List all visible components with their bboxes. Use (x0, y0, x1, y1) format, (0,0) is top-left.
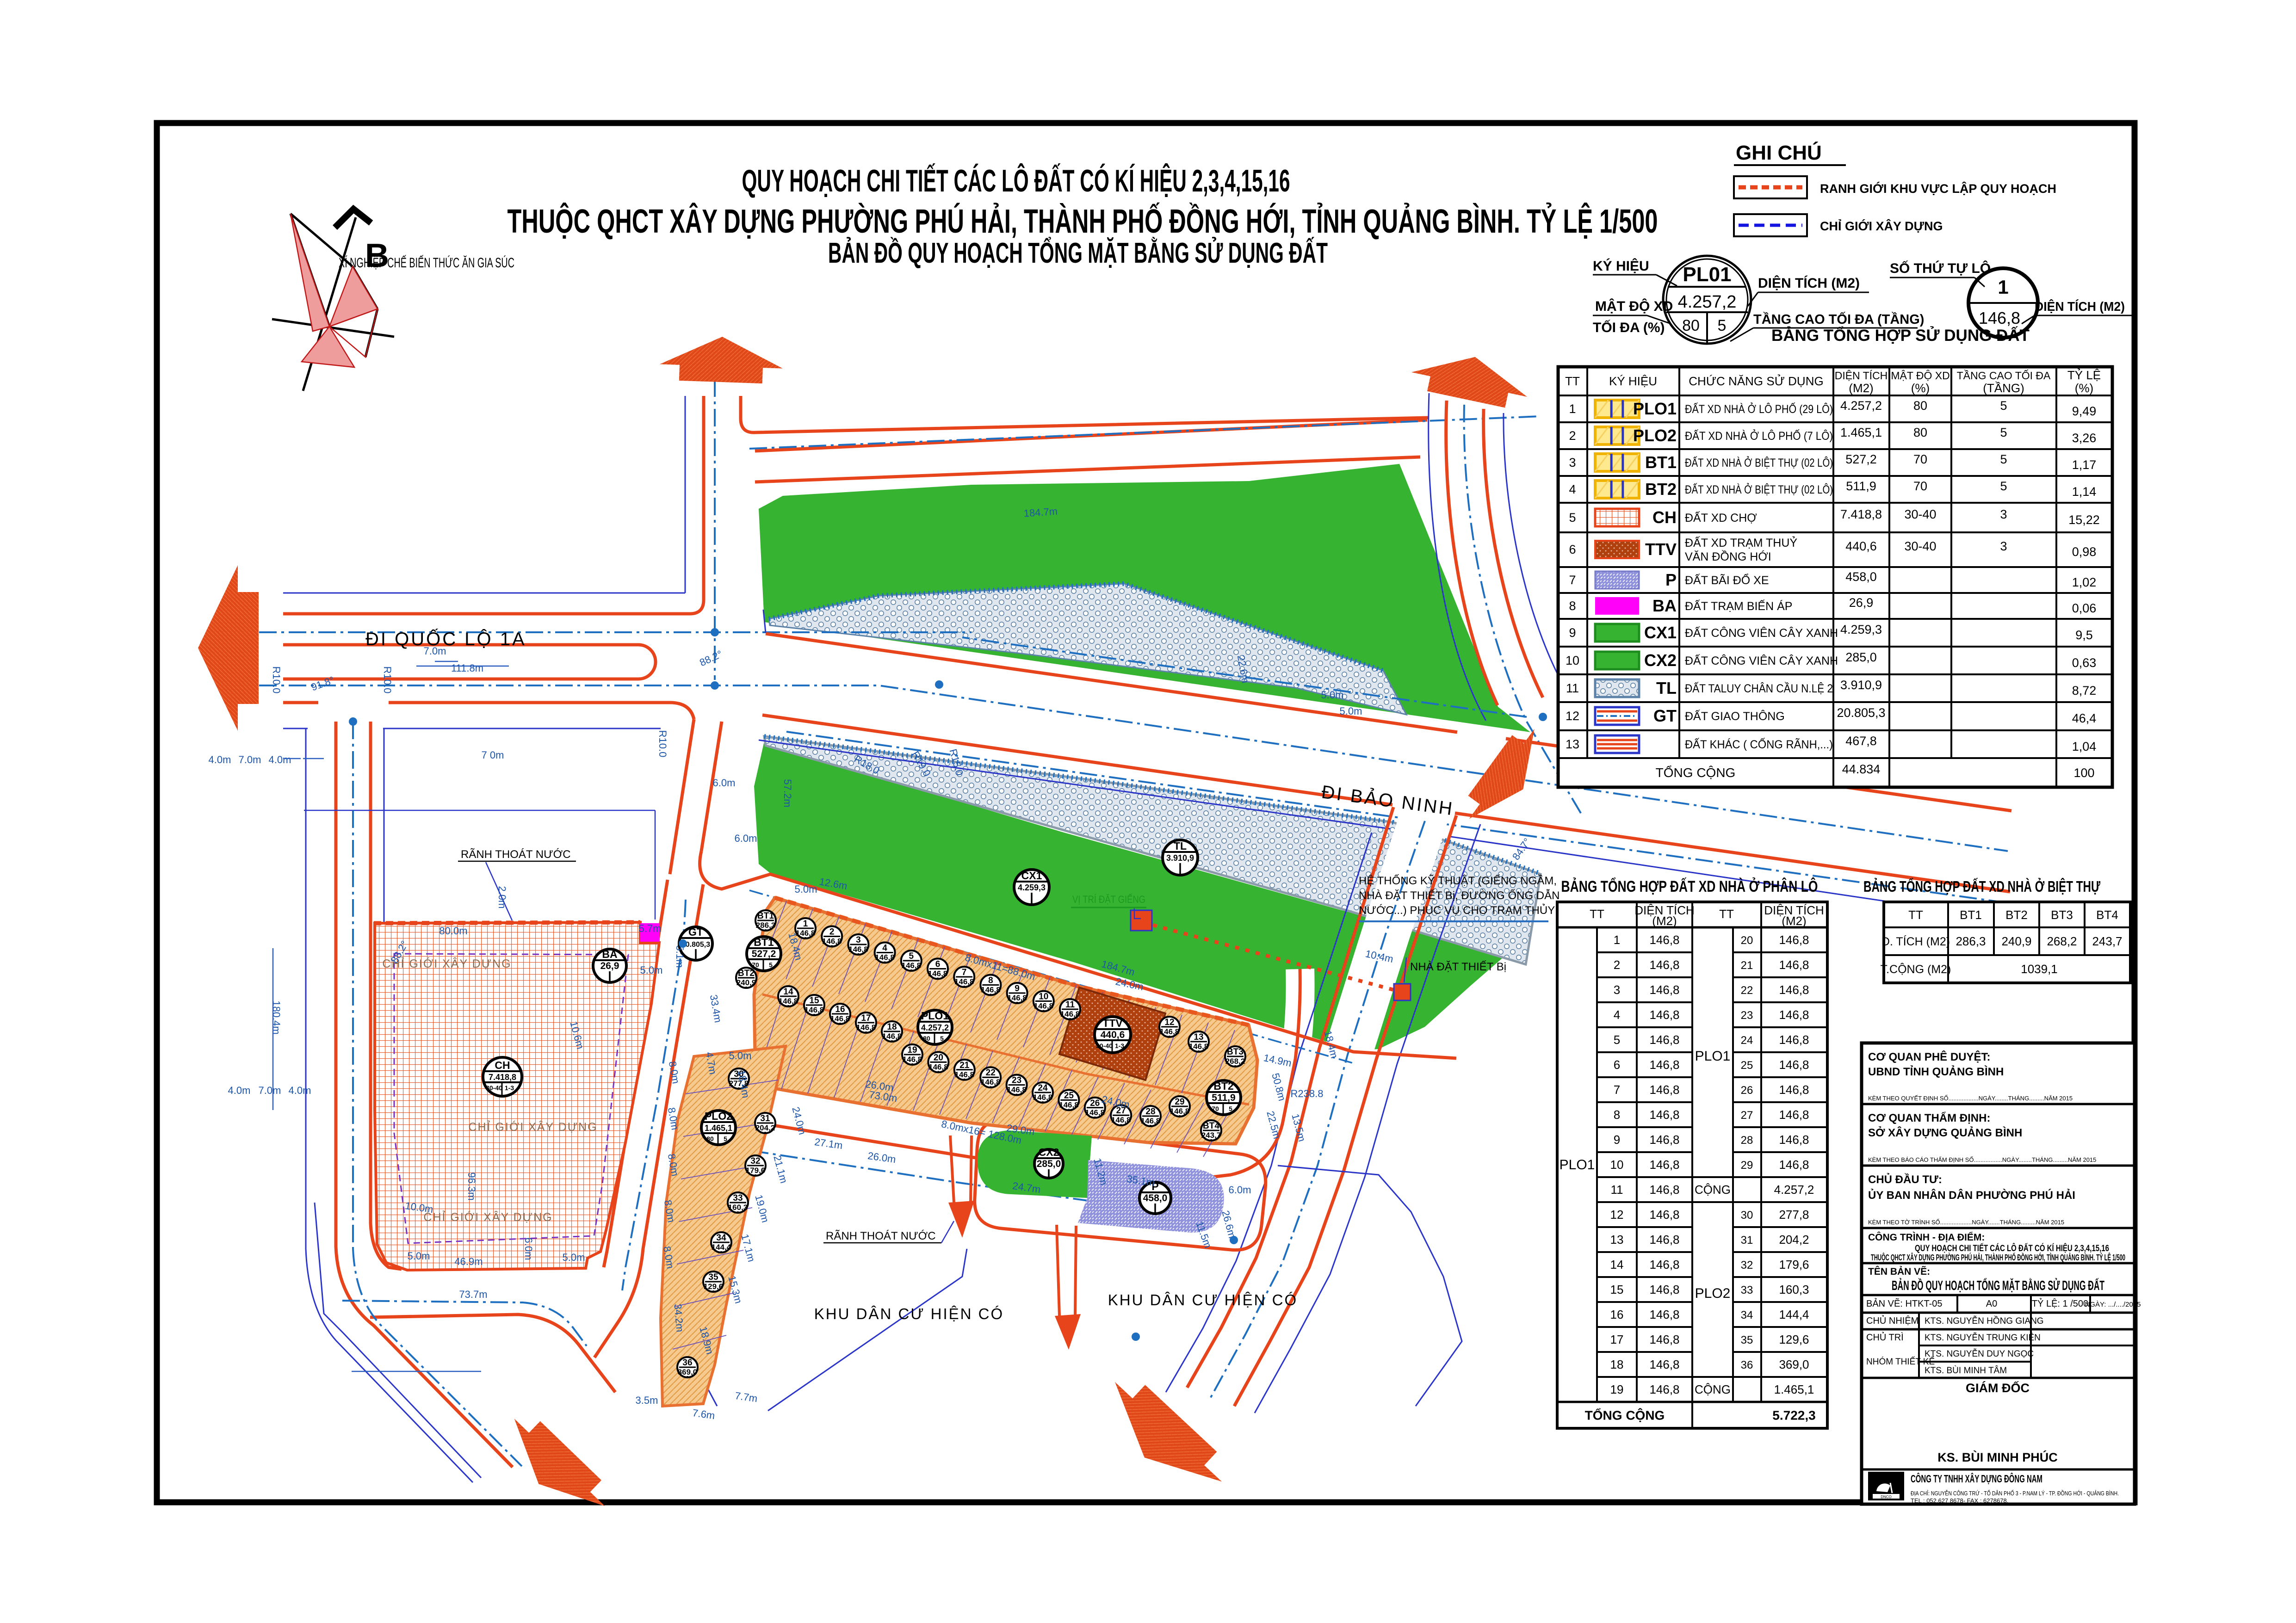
svg-text:17: 17 (1610, 1333, 1624, 1346)
svg-text:CHỈ GIỚI XÂY DỰNG: CHỈ GIỚI XÂY DỰNG (423, 1210, 552, 1224)
svg-text:146,8: 146,8 (1060, 1010, 1080, 1018)
svg-text:TỐI ĐA (%): TỐI ĐA (%) (1593, 320, 1665, 335)
svg-text:DNCO: DNCO (1881, 1495, 1892, 1499)
svg-text:13: 13 (1194, 1032, 1203, 1042)
svg-text:XÍ NGHIỆP CHẾ BIẾN THỨC ĂN GIA: XÍ NGHIỆP CHẾ BIẾN THỨC ĂN GIA SÚC (339, 255, 514, 271)
svg-text:146,8: 146,8 (856, 1023, 876, 1032)
svg-text:26,9: 26,9 (1849, 596, 1874, 610)
svg-text:146,8: 146,8 (954, 977, 974, 986)
svg-text:144,4: 144,4 (712, 1243, 731, 1252)
svg-text:146,8: 146,8 (1649, 933, 1679, 947)
svg-text:RANH GIỚI KHU VỰC LẬP QUY HOẠC: RANH GIỚI KHU VỰC LẬP QUY HOẠCH (1820, 181, 2056, 196)
svg-text:CHỈ GIỚI XÂY DỰNG: CHỈ GIỚI XÂY DỰNG (468, 1120, 597, 1134)
svg-text:46,4: 46,4 (2072, 711, 2097, 725)
svg-text:1.465,1: 1.465,1 (1774, 1382, 1814, 1396)
svg-text:KÝ HIỆU: KÝ HIỆU (1593, 258, 1649, 274)
svg-text:THUỘC QHCT XÂY DỰNG PHƯỜNG PHÚ: THUỘC QHCT XÂY DỰNG PHƯỜNG PHÚ HẢI, THÀN… (507, 202, 1658, 240)
svg-text:5.1m: 5.1m (674, 945, 686, 968)
svg-text:KTS. NGUYỄN TRUNG KIÊN: KTS. NGUYỄN TRUNG KIÊN (1925, 1333, 2041, 1343)
svg-text:TTV: TTV (1645, 540, 1677, 559)
svg-text:31: 31 (1741, 1234, 1753, 1247)
svg-text:19: 19 (907, 1045, 917, 1055)
svg-text:5: 5 (2000, 452, 2007, 466)
svg-text:1.465,1: 1.465,1 (705, 1123, 732, 1133)
svg-text:5.0m: 5.0m (1340, 705, 1362, 717)
svg-text:28: 28 (1145, 1107, 1155, 1117)
svg-text:RÃNH THOÁT NƯỚC: RÃNH THOÁT NƯỚC (826, 1230, 936, 1242)
svg-text:GHI CHÚ: GHI CHÚ (1736, 141, 1822, 164)
svg-text:7.418,8: 7.418,8 (489, 1073, 516, 1082)
svg-text:UBND TỈNH QUẢNG BÌNH: UBND TỈNH QUẢNG BÌNH (1868, 1065, 2004, 1078)
svg-text:146,8: 146,8 (875, 953, 895, 962)
svg-text:34.2m: 34.2m (672, 1303, 686, 1333)
svg-text:285,0: 285,0 (1845, 650, 1877, 664)
svg-text:NHÀ ĐẶT THIẾT Bị, ĐƯỜNG ỐNG DẪ: NHÀ ĐẶT THIẾT Bị, ĐƯỜNG ỐNG DẪN (1359, 889, 1560, 902)
svg-text:KÈM THEO TỜ TRÌNH SỐ..........: KÈM THEO TỜ TRÌNH SỐ...................N… (1868, 1219, 2064, 1226)
svg-text:1-3: 1-3 (1115, 1042, 1124, 1049)
svg-text:80.0m: 80.0m (439, 925, 467, 937)
svg-text:23: 23 (1741, 1009, 1753, 1022)
svg-text:146,8: 146,8 (1189, 1042, 1209, 1051)
svg-text:240,9: 240,9 (2001, 934, 2031, 948)
svg-text:5: 5 (1229, 1105, 1232, 1112)
svg-text:KS. BÙI MINH PHÚC: KS. BÙI MINH PHÚC (1937, 1450, 2058, 1464)
svg-text:ĐẤT XD NHÀ Ở LÔ PHỐ (7 LÔ): ĐẤT XD NHÀ Ở LÔ PHỐ (7 LÔ) (1685, 429, 1833, 443)
svg-text:D. TÍCH (M2): D. TÍCH (M2) (1881, 935, 1950, 948)
svg-text:204,2: 204,2 (1779, 1233, 1809, 1247)
svg-text:144,4: 144,4 (1779, 1308, 1809, 1321)
svg-text:70: 70 (752, 961, 759, 969)
svg-text:184.7m: 184.7m (1023, 505, 1058, 519)
svg-text:21: 21 (1741, 959, 1753, 972)
svg-text:3: 3 (1614, 983, 1620, 997)
svg-text:TL: TL (1656, 679, 1677, 697)
svg-text:PLO1: PLO1 (921, 1010, 949, 1022)
svg-text:285,0: 285,0 (1037, 1159, 1061, 1169)
svg-text:4.259,3: 4.259,3 (1018, 883, 1046, 892)
svg-text:NHÀ ĐẶT THIẾT Bị: NHÀ ĐẶT THIẾT Bị (1410, 960, 1506, 973)
svg-text:11: 11 (1611, 1183, 1623, 1197)
svg-text:5: 5 (769, 961, 773, 969)
svg-text:KTS. BÙI MINH TÂM: KTS. BÙI MINH TÂM (1925, 1365, 2007, 1376)
svg-text:PLO2: PLO2 (705, 1110, 732, 1122)
svg-text:TẦNG CAO TỐI ĐA (TẦNG): TẦNG CAO TỐI ĐA (TẦNG) (1753, 311, 1924, 327)
svg-text:369,0: 369,0 (1779, 1358, 1809, 1371)
svg-text:4: 4 (1569, 482, 1576, 496)
svg-text:ĐẤT XD NHÀ Ở BIỆT THỰ (02 LÔ): ĐẤT XD NHÀ Ở BIỆT THỰ (02 LÔ) (1685, 482, 1833, 496)
svg-text:BẢN ĐỒ QUY HOẠCH TỔNG MẶT BẰNG: BẢN ĐỒ QUY HOẠCH TỔNG MẶT BẰNG SỬ DỤNG Đ… (1892, 1277, 2104, 1293)
svg-text:BA: BA (1652, 596, 1677, 615)
svg-text:24: 24 (1038, 1083, 1048, 1093)
svg-text:7: 7 (1569, 573, 1576, 587)
svg-text:5.7m: 5.7m (639, 923, 662, 934)
svg-text:20.805,3: 20.805,3 (1837, 706, 1885, 720)
svg-text:3.910,9: 3.910,9 (1166, 853, 1194, 863)
svg-text:32: 32 (1741, 1259, 1753, 1271)
svg-text:146,8: 146,8 (779, 997, 798, 1006)
svg-text:11: 11 (1065, 1000, 1075, 1010)
svg-text:35: 35 (708, 1272, 718, 1282)
svg-text:BA: BA (602, 948, 617, 960)
svg-text:80: 80 (1682, 317, 1700, 334)
svg-text:A0: A0 (1986, 1299, 1997, 1309)
svg-text:KTS. NGUYỄN DUY NGỌC: KTS. NGUYỄN DUY NGỌC (1925, 1349, 2034, 1359)
svg-text:1.465,1: 1.465,1 (1840, 426, 1882, 439)
svg-text:5: 5 (724, 1135, 727, 1142)
svg-text:PLO1: PLO1 (1633, 399, 1677, 418)
svg-text:5: 5 (1718, 317, 1727, 334)
svg-text:15: 15 (1610, 1283, 1624, 1296)
svg-text:146,8: 146,8 (805, 1006, 824, 1014)
svg-text:TẦNG CAO TỐI ĐA: TẦNG CAO TỐI ĐA (1957, 369, 2051, 382)
svg-text:146,8: 146,8 (1779, 1133, 1809, 1147)
svg-text:243,7: 243,7 (2092, 934, 2122, 948)
svg-text:5.0m: 5.0m (729, 1050, 752, 1061)
svg-text:4.0m: 4.0m (289, 1085, 311, 1096)
svg-text:458,0: 458,0 (1143, 1193, 1168, 1203)
svg-text:CHỈ GIỚI XÂY DỰNG: CHỈ GIỚI XÂY DỰNG (1820, 218, 1943, 233)
svg-text:BT4: BT4 (1203, 1121, 1219, 1131)
svg-text:BẢN ĐỒ QUY HOẠCH TỔNG MẶT BẰNG: BẢN ĐỒ QUY HOẠCH TỔNG MẶT BẰNG SỬ DỤNG Đ… (828, 237, 1328, 269)
svg-text:24: 24 (1741, 1034, 1753, 1047)
svg-text:BT2: BT2 (738, 969, 755, 978)
svg-text:6.0m: 6.0m (735, 833, 757, 844)
svg-text:BẢNG TỔNG HỢP ĐẤT XD NHÀ Ở PHÂ: BẢNG TỔNG HỢP ĐẤT XD NHÀ Ở PHÂN LÔ (1561, 877, 1818, 895)
svg-text:4.0m: 4.0m (209, 754, 231, 765)
svg-text:12: 12 (1566, 709, 1579, 723)
svg-text:146,8: 146,8 (1649, 958, 1679, 972)
svg-text:146,8: 146,8 (1649, 1208, 1679, 1222)
svg-text:CHỨC NĂNG SỬ DỤNG: CHỨC NĂNG SỬ DỤNG (1689, 374, 1823, 388)
svg-text:146,8: 146,8 (1649, 1108, 1679, 1122)
svg-text:2: 2 (1614, 958, 1620, 972)
svg-text:3: 3 (2000, 539, 2007, 553)
svg-text:ỦY BAN NHÂN DÂN PHƯỜNG PHÚ HẢI: ỦY BAN NHÂN DÂN PHƯỜNG PHÚ HẢI (1868, 1188, 2075, 1202)
svg-text:146,8: 146,8 (830, 1014, 850, 1023)
svg-text:TEL : 052.627 8678- FAX : 6278: TEL : 052.627 8678- FAX : 6278678. (1911, 1497, 2008, 1504)
svg-text:ĐẤT CÔNG VIÊN CÂY XANH: ĐẤT CÔNG VIÊN CÂY XANH (1685, 626, 1838, 640)
svg-text:33: 33 (733, 1193, 743, 1203)
svg-text:CX1: CX1 (1644, 623, 1677, 642)
svg-text:3: 3 (856, 935, 861, 945)
svg-text:CHỦ NHIỆM: CHỦ NHIỆM (1866, 1315, 1918, 1326)
svg-text:SỞ XÂY DỰNG QUẢNG BÌNH: SỞ XÂY DỰNG QUẢNG BÌNH (1868, 1126, 2022, 1139)
svg-text:146,8: 146,8 (1649, 1283, 1679, 1296)
svg-text:CHỦ TRÌ: CHỦ TRÌ (1866, 1332, 1904, 1343)
svg-text:TỶ LỆ: TỶ LỆ (2067, 368, 2101, 382)
svg-text:P: P (1665, 570, 1677, 589)
svg-text:5.0m: 5.0m (1321, 689, 1344, 701)
svg-text:146,8: 146,8 (1779, 1058, 1809, 1072)
svg-text:1039,1: 1039,1 (2021, 962, 2058, 976)
svg-text:13: 13 (1610, 1233, 1624, 1247)
svg-text:5: 5 (2000, 479, 2007, 493)
svg-text:146,8: 146,8 (1779, 958, 1809, 972)
svg-text:80: 80 (923, 1035, 930, 1042)
svg-text:ĐỊA CHỈ: NGUYỄN CÔNG TRỨ - TỔ: ĐỊA CHỈ: NGUYỄN CÔNG TRỨ - TỔ DÂN PHỐ 3 … (1911, 1490, 2119, 1497)
svg-text:80: 80 (1913, 426, 1927, 439)
svg-text:7.418,8: 7.418,8 (1840, 507, 1882, 521)
svg-text:15: 15 (809, 996, 819, 1006)
svg-text:PLO2: PLO2 (1695, 1286, 1731, 1301)
svg-text:PLO2: PLO2 (1633, 426, 1677, 445)
svg-text:146,8: 146,8 (955, 1070, 975, 1079)
svg-text:21: 21 (959, 1061, 970, 1070)
svg-text:146,8: 146,8 (1007, 1086, 1027, 1094)
svg-text:23: 23 (1012, 1076, 1021, 1086)
svg-text:10: 10 (1610, 1158, 1624, 1172)
svg-text:146,8: 146,8 (1111, 1116, 1131, 1124)
svg-text:6: 6 (1569, 543, 1576, 556)
svg-text:2.0m: 2.0m (496, 886, 508, 909)
svg-text:146,8: 146,8 (1160, 1027, 1180, 1036)
svg-text:8: 8 (1569, 599, 1576, 613)
svg-text:34: 34 (716, 1233, 726, 1243)
svg-text:30-40: 30-40 (1904, 539, 1936, 553)
svg-text:QUY HOẠCH CHI TIẾT CÁC LÔ ĐẤT: QUY HOẠCH CHI TIẾT CÁC LÔ ĐẤT CÓ KÍ HIỆU… (1915, 1243, 2109, 1253)
svg-text:4.257,2: 4.257,2 (1678, 292, 1737, 312)
svg-text:36: 36 (682, 1358, 692, 1368)
svg-text:DIỆN TÍCH (M2): DIỆN TÍCH (M2) (1758, 275, 1860, 291)
svg-text:18: 18 (887, 1022, 897, 1032)
svg-text:GIÁM ĐỐC: GIÁM ĐỐC (1966, 1380, 2030, 1395)
svg-text:146,8: 146,8 (1649, 1233, 1679, 1247)
svg-text:R10.0: R10.0 (382, 666, 393, 694)
svg-text:7: 7 (962, 968, 967, 977)
svg-text:146,8: 146,8 (1034, 1002, 1054, 1011)
svg-text:R10.0: R10.0 (657, 730, 668, 758)
svg-text:CX2: CX2 (1039, 1146, 1059, 1158)
svg-text:CH: CH (1652, 508, 1677, 527)
svg-text:440,6: 440,6 (1101, 1030, 1125, 1040)
svg-text:TỔNG CỘNG: TỔNG CỘNG (1656, 765, 1736, 780)
svg-text:TỶ LỆ: 1 /500: TỶ LỆ: 1 /500 (2032, 1298, 2088, 1309)
svg-text:243,7: 243,7 (1201, 1131, 1221, 1140)
svg-text:(M2): (M2) (1782, 914, 1806, 928)
svg-text:7.0m: 7.0m (239, 754, 261, 765)
svg-text:12: 12 (1610, 1208, 1624, 1222)
svg-text:1: 1 (1614, 933, 1620, 947)
svg-text:35: 35 (1741, 1334, 1753, 1346)
svg-text:RÃNH THOÁT NƯỚC: RÃNH THOÁT NƯỚC (461, 848, 571, 861)
svg-text:129,6: 129,6 (704, 1282, 724, 1291)
svg-text:30-40: 30-40 (1904, 507, 1936, 521)
svg-text:3: 3 (2000, 507, 2007, 521)
svg-text:146,8: 146,8 (882, 1032, 902, 1041)
svg-text:5.0m: 5.0m (408, 1250, 430, 1262)
svg-text:25: 25 (1741, 1059, 1753, 1072)
svg-text:HỆ THỐNG KỸ THUẬT (GIẾNG NGẦM,: HỆ THỐNG KỸ THUẬT (GIẾNG NGẦM, (1359, 874, 1557, 887)
svg-text:3.910,9: 3.910,9 (1840, 678, 1882, 692)
svg-text:527,2: 527,2 (1845, 452, 1877, 466)
svg-text:1,04: 1,04 (2072, 740, 2097, 753)
svg-text:DIỆN TÍCH (M2): DIỆN TÍCH (M2) (2035, 299, 2125, 314)
svg-text:179,6: 179,6 (1779, 1258, 1809, 1271)
svg-text:146,8: 146,8 (822, 937, 842, 946)
svg-text:PL01: PL01 (1683, 263, 1731, 286)
svg-text:12: 12 (1164, 1018, 1174, 1027)
svg-text:31: 31 (760, 1114, 770, 1123)
svg-text:8: 8 (1614, 1108, 1620, 1122)
svg-text:369,0: 369,0 (678, 1368, 698, 1376)
svg-text:BT2: BT2 (1645, 480, 1677, 499)
svg-text:129,6: 129,6 (1779, 1333, 1809, 1346)
svg-text:4.257,2: 4.257,2 (921, 1023, 949, 1032)
svg-text:268,2: 268,2 (2047, 934, 2077, 948)
svg-text:19: 19 (1610, 1382, 1624, 1396)
svg-text:27: 27 (1741, 1109, 1753, 1122)
svg-text:10: 10 (1566, 654, 1579, 667)
svg-text:4.0m: 4.0m (269, 754, 291, 765)
svg-text:160,3: 160,3 (728, 1203, 748, 1212)
svg-text:BẢNG TỔNG HỢP ĐẤT XD NHÀ Ở BIỆ: BẢNG TỔNG HỢP ĐẤT XD NHÀ Ở BIỆT THỰ (1863, 878, 2100, 895)
svg-text:9,49: 9,49 (2072, 404, 2097, 418)
svg-text:5: 5 (2000, 426, 2007, 439)
svg-text:7.0m: 7.0m (259, 1085, 281, 1096)
svg-text:160,3: 160,3 (1779, 1283, 1809, 1296)
svg-text:VĂN ĐỒNG HỚI: VĂN ĐỒNG HỚI (1685, 549, 1771, 563)
svg-text:146,8: 146,8 (1779, 1083, 1809, 1097)
svg-text:36: 36 (1741, 1359, 1753, 1371)
svg-text:70: 70 (1913, 452, 1927, 466)
svg-text:ĐẤT GIAO THÔNG: ĐẤT GIAO THÔNG (1685, 710, 1785, 723)
svg-text:440,6: 440,6 (1845, 539, 1877, 553)
svg-text:146,8: 146,8 (1649, 1183, 1679, 1197)
svg-text:TT: TT (1565, 374, 1580, 388)
svg-text:73.7m: 73.7m (459, 1289, 487, 1300)
svg-text:ĐẤT XD NHÀ Ở LÔ PHỐ (29 LÔ): ĐẤT XD NHÀ Ở LÔ PHỐ (29 LÔ) (1685, 402, 1833, 416)
svg-text:22: 22 (1741, 984, 1753, 997)
svg-text:34: 34 (1741, 1309, 1753, 1321)
svg-text:268,2: 268,2 (1225, 1057, 1245, 1066)
svg-text:44.834: 44.834 (1842, 762, 1881, 776)
svg-text:BT2: BT2 (1213, 1080, 1233, 1092)
svg-text:BT1: BT1 (757, 911, 774, 921)
svg-text:146,8: 146,8 (1649, 1133, 1679, 1147)
svg-text:VỊ TRÍ ĐẶT GIẾNG: VỊ TRÍ ĐẶT GIẾNG (1072, 894, 1145, 905)
svg-text:TT: TT (1719, 907, 1734, 921)
svg-text:(%): (%) (1911, 381, 1930, 395)
svg-text:KHU DÂN CƯ HIỆN CÓ: KHU DÂN CƯ HIỆN CÓ (814, 1305, 1004, 1322)
svg-text:5: 5 (940, 1035, 944, 1042)
svg-text:146,8: 146,8 (1649, 1033, 1679, 1047)
svg-text:46.9m: 46.9m (454, 1256, 483, 1267)
svg-text:26: 26 (1090, 1098, 1100, 1108)
svg-text:111.8m: 111.8m (451, 662, 483, 674)
svg-text:5.0m: 5.0m (795, 883, 817, 895)
svg-text:4.257,2: 4.257,2 (1774, 1183, 1814, 1197)
svg-text:7 0m: 7 0m (482, 749, 504, 761)
svg-text:ĐẤT KHÁC ( CỐNG RÃNH,...): ĐẤT KHÁC ( CỐNG RÃNH,...) (1685, 737, 1833, 751)
svg-text:CHỦ ĐẦU TƯ:: CHỦ ĐẦU TƯ: (1868, 1173, 1942, 1186)
svg-text:100: 100 (2073, 766, 2094, 780)
svg-text:18: 18 (1610, 1358, 1624, 1371)
svg-text:BT3: BT3 (2051, 908, 2073, 922)
svg-text:1-3: 1-3 (505, 1084, 514, 1092)
svg-text:1: 1 (1569, 402, 1576, 416)
svg-text:10: 10 (1039, 992, 1048, 1002)
svg-text:146,8: 146,8 (902, 961, 922, 970)
svg-text:CỘNG: CỘNG (1695, 1382, 1731, 1396)
svg-text:16: 16 (835, 1005, 845, 1014)
svg-text:146,8: 146,8 (981, 1078, 1001, 1086)
svg-text:13: 13 (1566, 737, 1579, 751)
svg-text:277,8: 277,8 (1779, 1208, 1809, 1222)
svg-text:THUỘC QHCT XÂY DỰNG PHƯỜNG PHÚ: THUỘC QHCT XÂY DỰNG PHƯỜNG PHÚ HẢI, THÀN… (1871, 1253, 2125, 1262)
svg-text:ĐẤT XD TRẠM THUỶ: ĐẤT XD TRẠM THUỶ (1685, 536, 1797, 549)
svg-text:TL: TL (1174, 840, 1187, 852)
svg-text:ĐẤT XD NHÀ Ở BIỆT THỰ (02 LÔ): ĐẤT XD NHÀ Ở BIỆT THỰ (02 LÔ) (1685, 456, 1833, 469)
svg-text:7: 7 (1614, 1083, 1620, 1097)
svg-text:0,06: 0,06 (2072, 601, 2097, 615)
svg-text:9: 9 (1015, 984, 1020, 994)
svg-text:(M2): (M2) (1849, 381, 1873, 395)
svg-text:CÔNG TRÌNH - ĐỊA ĐIỂM:: CÔNG TRÌNH - ĐỊA ĐIỂM: (1868, 1232, 1985, 1243)
svg-text:33: 33 (1741, 1284, 1753, 1296)
svg-text:TÊN BẢN VẼ:: TÊN BẢN VẼ: (1868, 1266, 1930, 1277)
svg-text:6: 6 (1614, 1058, 1620, 1072)
svg-text:MẬT ĐỘ XD: MẬT ĐỘ XD (1595, 298, 1673, 314)
svg-text:5: 5 (2000, 399, 2007, 413)
svg-text:146,8: 146,8 (1649, 1308, 1679, 1321)
svg-text:146,8: 146,8 (1649, 1333, 1679, 1346)
svg-text:146,8: 146,8 (1649, 1083, 1679, 1097)
svg-text:96.3m: 96.3m (466, 1172, 477, 1200)
svg-text:CƠ QUAN THẨM ĐỊNH:: CƠ QUAN THẨM ĐỊNH: (1868, 1111, 1990, 1124)
svg-text:BẢN VẼ: HTKT-05: BẢN VẼ: HTKT-05 (1866, 1298, 1943, 1309)
svg-text:146,8: 146,8 (1007, 994, 1027, 1002)
svg-text:1,14: 1,14 (2072, 485, 2097, 499)
svg-text:CH: CH (495, 1059, 510, 1071)
svg-text:146,8: 146,8 (1649, 1258, 1679, 1271)
svg-text:BT1: BT1 (1645, 453, 1677, 472)
svg-text:1,17: 1,17 (2072, 458, 2097, 472)
svg-text:146,8: 146,8 (928, 969, 948, 978)
svg-text:5.0m: 5.0m (563, 1252, 585, 1263)
svg-text:CƠ QUAN PHÊ DUYỆT:: CƠ QUAN PHÊ DUYỆT: (1868, 1050, 1991, 1063)
svg-text:30-40: 30-40 (486, 1084, 502, 1092)
svg-text:146,8: 146,8 (1779, 1158, 1809, 1172)
svg-text:KÈM THEO QUYẾT ĐỊNH SỐ......: KÈM THEO QUYẾT ĐỊNH SỐ..................… (1868, 1095, 2073, 1102)
svg-text:26: 26 (1741, 1084, 1753, 1097)
svg-text:146,8: 146,8 (1649, 1058, 1679, 1072)
svg-text:16: 16 (1610, 1308, 1624, 1321)
svg-text:GT: GT (1653, 706, 1677, 725)
svg-text:20: 20 (1741, 934, 1753, 947)
svg-text:TT: TT (1590, 907, 1604, 921)
svg-text:240,9: 240,9 (736, 978, 756, 987)
svg-text:146,8: 146,8 (1779, 1033, 1809, 1047)
svg-text:146,8: 146,8 (1779, 933, 1809, 947)
svg-text:9: 9 (1569, 626, 1576, 640)
svg-text:4: 4 (1614, 1008, 1620, 1022)
svg-text:80: 80 (706, 1135, 714, 1142)
svg-text:29: 29 (1175, 1097, 1184, 1107)
svg-text:8,72: 8,72 (2072, 684, 2097, 697)
svg-text:0,63: 0,63 (2072, 656, 2097, 670)
svg-text:(TẦNG): (TẦNG) (1983, 381, 2024, 395)
svg-text:KÝ HIỆU: KÝ HIỆU (1609, 374, 1657, 388)
svg-text:(M2): (M2) (1652, 914, 1677, 928)
svg-text:4: 4 (882, 944, 887, 953)
svg-text:BT1: BT1 (754, 936, 774, 948)
svg-text:30-40: 30-40 (1096, 1042, 1113, 1049)
svg-text:T.CỘNG (M2): T.CỘNG (M2) (1881, 963, 1951, 976)
svg-text:146,8: 146,8 (1170, 1107, 1190, 1116)
svg-text:32: 32 (750, 1156, 760, 1166)
svg-text:PLO1: PLO1 (1560, 1157, 1595, 1173)
svg-text:SỐ THỨ TỰ LÔ: SỐ THỨ TỰ LÔ (1890, 260, 1991, 276)
